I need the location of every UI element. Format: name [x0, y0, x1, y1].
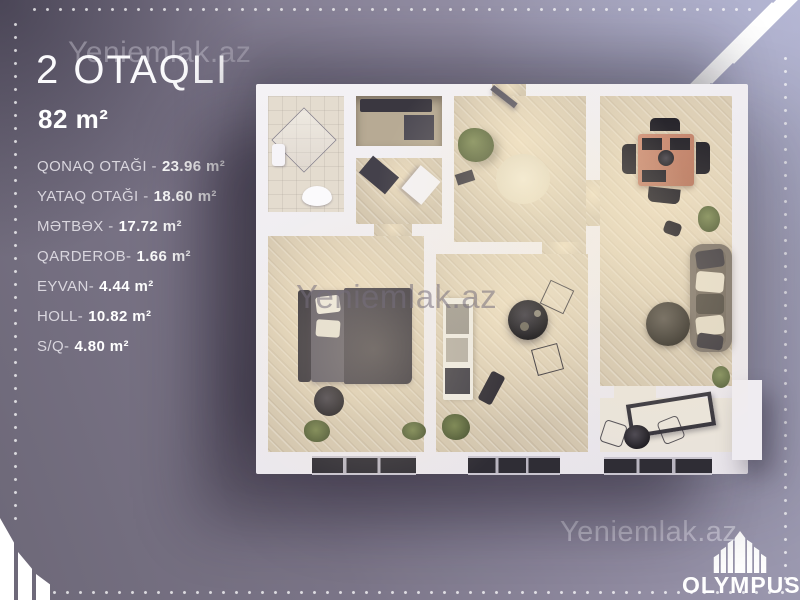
brand-name: OLYMPUS [682, 572, 800, 599]
hall-rug [496, 154, 550, 204]
room-area-value: 17.72 m² [119, 218, 182, 235]
kitchen-doorway [542, 242, 586, 254]
room-list: QONAQ OTAĞI -23.96 m² YATAQ OTAĞI -18.60… [37, 158, 225, 368]
sofa-pillow [696, 294, 724, 314]
living-plant [712, 366, 730, 388]
placemat [642, 170, 666, 182]
sofa-pillow [695, 271, 725, 293]
room-label: MƏTBƏX - [37, 218, 114, 235]
room-area-value: 4.44 m² [99, 278, 154, 295]
olympus-towers-icon [712, 530, 768, 574]
page-title: 2 OTAQLI [36, 48, 229, 93]
corner-bar-decoration [36, 574, 50, 600]
bed-pillow [315, 295, 341, 315]
kitchen-window [468, 456, 560, 475]
room-area-value: 4.80 m² [74, 338, 129, 355]
dotted-border-left [9, 18, 21, 523]
balcony-wall-step [732, 380, 762, 460]
coffee-table [646, 302, 690, 346]
cup [534, 310, 541, 317]
dotted-border-top [28, 3, 756, 15]
room-list-item: S/Q-4.80 m² [37, 338, 225, 355]
room-label: QONAQ OTAĞI - [37, 158, 157, 175]
kitchen-appliance [446, 304, 469, 334]
room-list-item: QARDEROB-1.66 m² [37, 248, 225, 265]
room-list-item: HOLL-10.82 m² [37, 308, 225, 325]
room-list-item: MƏTBƏX -17.72 m² [37, 218, 225, 235]
living-plant [698, 206, 720, 232]
balcony-planter [624, 425, 650, 449]
placemat [642, 138, 662, 150]
dining-chair [647, 186, 680, 204]
bed-headboard [298, 290, 311, 382]
bed-blanket [344, 288, 412, 384]
room-label: EYVAN- [37, 278, 94, 295]
room-list-item: EYVAN-4.44 m² [37, 278, 225, 295]
wardrobe-shelf [360, 99, 432, 112]
kitchen-plant [442, 414, 470, 440]
room-area-value: 23.96 m² [162, 158, 225, 175]
living-doorway [586, 180, 600, 226]
placemat [670, 138, 690, 150]
centerpiece-bowl [658, 150, 674, 166]
toilet [302, 186, 332, 206]
kitchen-round-table [508, 300, 548, 340]
room-area-value: 10.82 m² [88, 308, 151, 325]
room-area-value: 1.66 m² [136, 248, 191, 265]
bedroom-doorway [374, 224, 412, 236]
kitchen-appliance [446, 338, 468, 362]
wardrobe-shelf [404, 115, 434, 140]
balcony-doorway [614, 386, 656, 398]
room-label: QARDEROB- [37, 248, 131, 265]
corner-bar-decoration [18, 552, 32, 600]
dotted-border-right [779, 52, 791, 590]
sofa-pillow [695, 248, 725, 270]
room-list-item: YATAQ OTAĞI -18.60 m² [37, 188, 225, 205]
poster: Yeniemlak.az 2 OTAQLI 82 m² QONAQ OTAĞI … [0, 0, 800, 600]
room-list-item: QONAQ OTAĞI -23.96 m² [37, 158, 225, 175]
bedroom-window [312, 456, 416, 475]
bedside-table [314, 386, 344, 416]
dotted-border-bottom [48, 586, 790, 598]
bedroom-plant [402, 422, 426, 440]
corner-bar-decoration [0, 518, 14, 600]
room-area-value: 18.60 m² [154, 188, 217, 205]
dining-chair [650, 118, 680, 131]
total-area: 82 m² [38, 104, 108, 135]
floor-plan [256, 84, 748, 474]
dining-chair [622, 144, 636, 174]
dining-chair [696, 142, 710, 174]
cup [520, 322, 529, 331]
room-label: HOLL- [37, 308, 83, 325]
hall-plant [458, 128, 494, 162]
watermark-bottom: Yeniemlak.az [560, 516, 737, 549]
sink [272, 144, 285, 166]
bed-pillow [315, 319, 340, 338]
kitchen-stove [445, 368, 470, 394]
balcony-window [604, 457, 712, 475]
room-label: S/Q- [37, 338, 69, 355]
room-label: YATAQ OTAĞI - [37, 188, 149, 205]
bedroom-plant [304, 420, 330, 442]
